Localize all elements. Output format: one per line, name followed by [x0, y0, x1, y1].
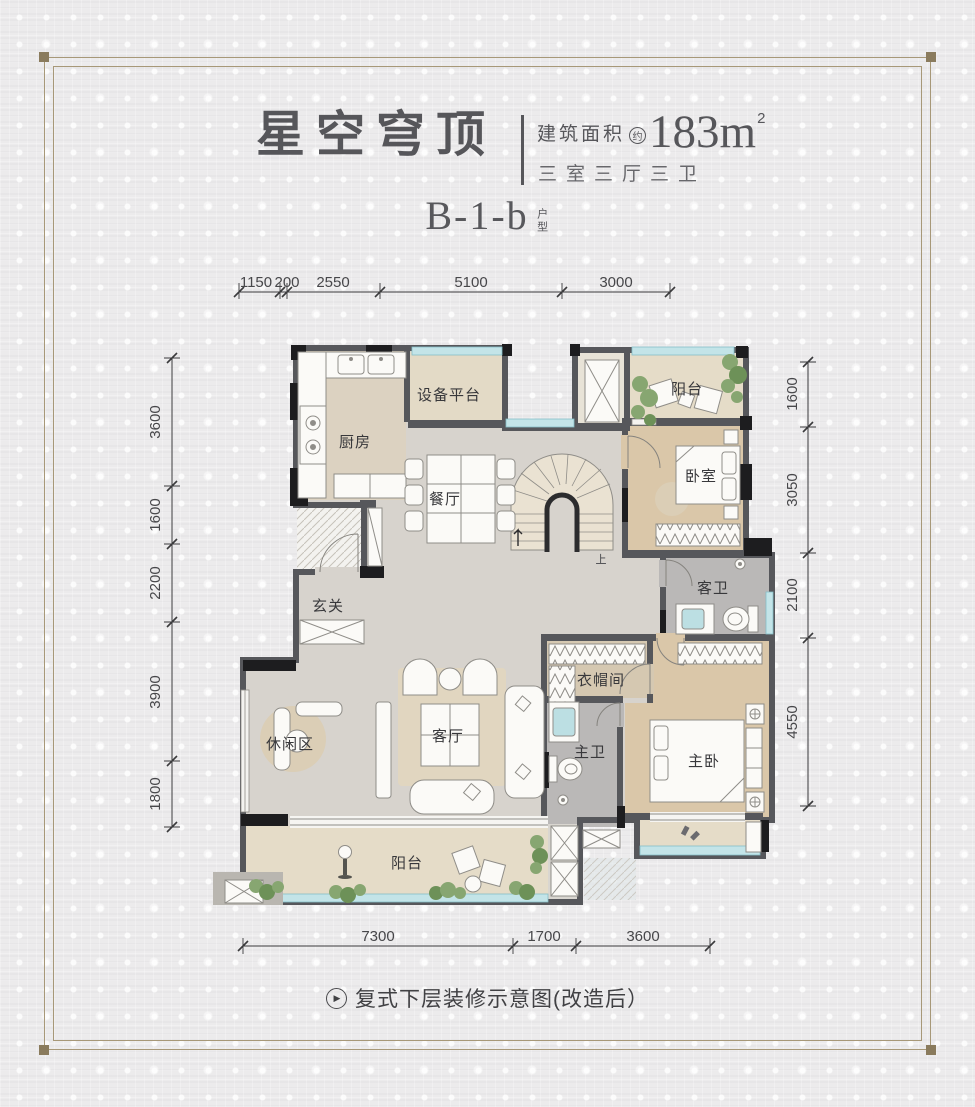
svg-text:1700: 1700 — [527, 928, 560, 945]
svg-text:1150: 1150 — [240, 274, 272, 291]
floor-lamp — [339, 846, 352, 859]
svg-text:3600: 3600 — [147, 405, 164, 438]
label-kitchen: 厨房 — [339, 434, 371, 451]
side-table — [439, 668, 461, 690]
stove — [300, 406, 326, 464]
label-balcony-bottom: 阳台 — [391, 855, 423, 872]
svg-text:2200: 2200 — [147, 566, 164, 599]
label-leisure: 休闲区 — [266, 736, 314, 753]
dimension-right: 1600 3050 2100 4550 — [784, 357, 816, 811]
dresser — [746, 728, 762, 788]
armchair — [403, 659, 437, 695]
caption-row: ▶ 复式下层装修示意图(改造后） — [0, 983, 975, 1013]
svg-text:2100: 2100 — [784, 578, 801, 611]
tv-cabinet — [376, 702, 391, 798]
label-balcony-top: 阳台 — [671, 381, 703, 398]
svg-text:200: 200 — [274, 274, 299, 291]
armchair — [463, 659, 497, 695]
label-dining: 餐厅 — [429, 491, 461, 508]
svg-text:5100: 5100 — [454, 274, 487, 291]
label-guest-bath: 客卫 — [697, 580, 729, 597]
dimension-left: 3600 1600 2200 3900 1800 — [147, 353, 180, 832]
svg-text:7300: 7300 — [361, 928, 394, 945]
caption-text: 复式下层装修示意图(改造后） — [355, 983, 649, 1013]
toilet — [558, 758, 582, 780]
toilet — [723, 607, 749, 631]
label-cloakroom: 衣帽间 — [577, 672, 625, 689]
label-stair-up: 上 — [596, 553, 607, 566]
svg-text:2550: 2550 — [316, 274, 349, 291]
sofa — [410, 780, 494, 814]
label-equipment-platform: 设备平台 — [417, 387, 481, 404]
svg-text:1800: 1800 — [147, 777, 164, 810]
svg-text:3600: 3600 — [626, 928, 659, 945]
label-foyer: 玄关 — [312, 598, 344, 615]
floor-plan-canvas: 厨房 设备平台 阳台 卧室 餐厅 玄关 客卫 衣帽间 休闲区 客厅 主卫 主卧 … — [0, 0, 975, 1107]
svg-text:3000: 3000 — [599, 274, 632, 291]
svg-text:4550: 4550 — [784, 705, 801, 738]
label-living: 客厅 — [432, 728, 464, 745]
svg-text:1600: 1600 — [147, 498, 164, 531]
svg-text:3900: 3900 — [147, 675, 164, 708]
label-bedroom: 卧室 — [685, 468, 717, 485]
label-master-bath: 主卫 — [574, 744, 606, 761]
dimension-top: 1150 200 2550 5100 3000 — [234, 274, 675, 299]
play-circle-icon: ▶ — [326, 988, 347, 1009]
label-master-bedroom: 主卧 — [688, 753, 720, 770]
svg-text:3050: 3050 — [784, 473, 801, 506]
dimension-bottom: 7300 1700 3600 — [238, 928, 715, 954]
svg-text:1600: 1600 — [784, 377, 801, 410]
brochure-page: 星空穹顶 建筑面积 约 183m 2 三室三厅三卫 B-1-b 户型 — [0, 0, 975, 1107]
